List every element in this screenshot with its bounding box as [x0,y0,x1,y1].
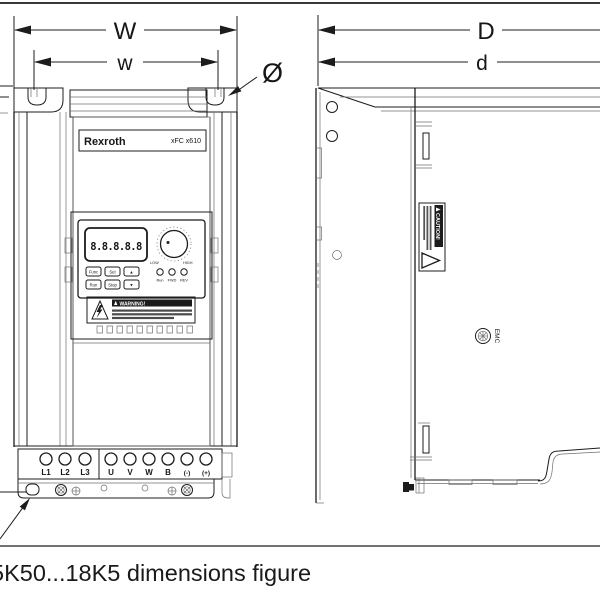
terminal-block: L1 L2 L3 U V W B (-) (+) [18,449,232,479]
side-view: D d [316,15,600,503]
dim-label-diameter: Ø [262,58,283,88]
dim-label-D: D [477,18,494,45]
ground-screw-left [56,485,67,496]
technical-drawing: W w Ø [0,0,600,600]
emc-screw: EMC [476,329,501,344]
bottom-mounting-slot [26,484,39,495]
terminal-U-label: U [108,468,114,477]
warning-label: WARNING! [87,297,195,323]
dimension-D: D [318,15,600,86]
arrowhead-left-icon [318,58,335,67]
diameter-callout: Ø [228,58,283,96]
cover-clip-slot [423,426,429,453]
terminal-V-label: V [127,468,133,477]
down-arrow-icon: ▼ [129,283,133,288]
output-terminals: U V W B (-) (+) [105,453,212,477]
bottom-leader-callout [0,492,30,539]
back-plate [316,88,342,503]
terminal-L2-label: L2 [60,468,70,477]
caution-fine-print [430,206,432,250]
status-leds: Run FWD REV [157,269,189,283]
stop-button-label: Stop [108,283,117,288]
keypad-buttons: Func Set ▲ Run Stop ▼ [86,267,139,289]
caution-fine-print [423,206,425,240]
hazard-triangle-icon [422,253,440,268]
leader-arrowhead-icon [20,498,30,510]
terminal-L1-label: L1 [41,468,51,477]
dim-label-d: d [476,52,488,75]
emc-label: EMC [493,329,500,344]
warning-title: WARNING! [120,301,146,307]
terminal-W-label: W [145,468,153,477]
side-top-edge [318,88,600,111]
fwd-led-label: FWD [168,279,177,283]
terminal-B-label: B [165,468,171,477]
mounting-tab-left [14,88,63,112]
fwd-led [169,269,175,275]
run-led [157,269,163,275]
dim-label-W: W [114,18,137,45]
dimension-d: d [318,52,600,75]
arrowhead-left-icon [14,26,31,35]
bottom-screw [403,482,409,492]
plate-hole [333,251,342,260]
dim-label-w: w [116,52,133,75]
bottom-screw [409,484,414,491]
terminal-minus-label: (-) [184,470,191,477]
arrowhead-left-icon [34,58,51,67]
front-view: W w Ø [0,16,283,539]
caution-fine-print [427,206,429,250]
ground-screw-right [182,485,193,496]
terminal-plus-label: (+) [202,470,210,477]
display-readout: 8.8.8.8.8 [90,241,142,253]
rev-led-label: REV [180,279,188,283]
cover-clip-slot [423,133,429,159]
model-text: xFC x610 [171,138,201,145]
knob-tick-ring [157,227,191,261]
plate-hole [327,131,338,142]
top-vent-block [70,90,207,117]
input-terminals: L1 L2 L3 [40,453,91,477]
brand-text: Rexroth [84,136,126,148]
side-front-face [410,88,432,480]
set-button-label: Set [109,270,116,275]
rev-led [181,269,187,275]
dimensions-figure: W w Ø [0,0,600,600]
side-bottom-edge [403,448,600,493]
warning-fine-print [112,317,174,319]
warning-fine-print [112,310,192,312]
knob-low-label: LOW [150,261,159,265]
knob-indicator-dot [167,241,170,244]
warning-fine-print [112,313,192,315]
arrowhead-right-icon [201,58,218,67]
mounting-tab-right [188,88,237,112]
dimension-w: w [34,50,218,90]
plate-hole [327,102,338,113]
figure-caption: 5K50...18K5 dimensions figure [0,560,311,586]
arrowhead-right-icon [220,26,237,35]
bottom-bracket [18,479,230,498]
up-arrow-icon: ▲ [129,270,133,275]
run-led-label: Run [157,279,164,283]
caution-label: CAUTION! [419,203,445,271]
earth-symbol-left [72,487,80,495]
caution-title: CAUTION! [434,213,440,240]
func-button-label: Func [89,270,98,275]
brand-label: Rexroth xFC x610 [79,130,206,151]
vent-slots [97,326,193,333]
earth-symbol-right [168,487,176,495]
terminal-L3-label: L3 [80,468,90,477]
knob-high-label: HIGH [183,261,193,265]
front-panel [73,117,210,446]
keypad-assembly: 8.8.8.8.8 LOW HIGH Func Set ▲ Run S [65,212,218,343]
arrowhead-left-icon [318,26,335,35]
run-button-label: Run [90,283,98,288]
potentiometer-knob: LOW HIGH [150,227,193,265]
